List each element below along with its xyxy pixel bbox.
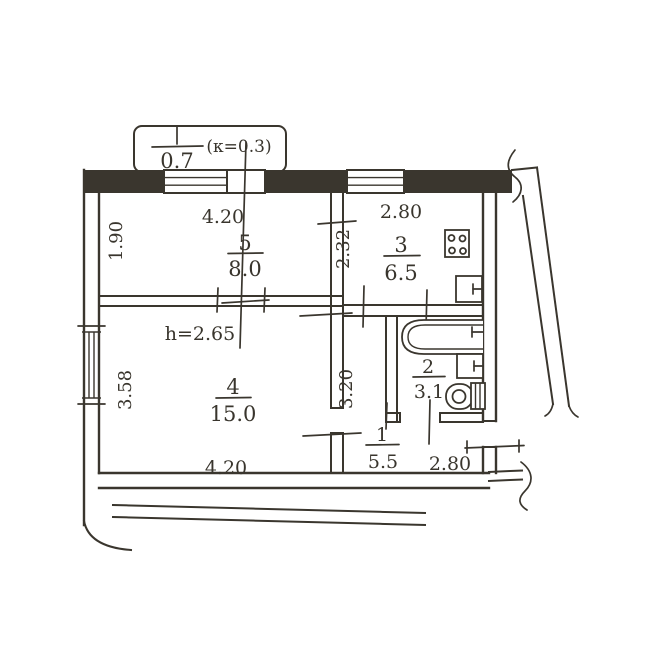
wall-break-bottom-right (520, 462, 531, 510)
hall-number: 1 (376, 424, 388, 446)
wall-break-bottom-left (84, 521, 131, 550)
hall-label: 1 5.5 (366, 424, 399, 473)
room5-width-dim: 4.20 (202, 206, 244, 228)
room4-area: 15.0 (210, 402, 257, 426)
floor-plan-page: 0.7 (к=0.3) (0, 0, 655, 670)
kitchen-number: 3 (394, 233, 407, 257)
window-room4 (78, 326, 105, 404)
stove-icon (445, 230, 469, 257)
room4-number: 4 (226, 375, 239, 399)
bathroom-label: 2 3.1 (413, 356, 445, 403)
top-exterior-wall (83, 170, 512, 193)
bathtub-icon (402, 320, 483, 354)
hall-depth-dim: 3.20 (336, 369, 357, 409)
kitchen-label: 3 6.5 (384, 233, 420, 285)
hall-width-dim: 2.80 (429, 453, 471, 475)
kitchen-depth-dim: 2.32 (333, 229, 354, 269)
wall-room5-room4 (99, 296, 343, 306)
floor-plan-drawing: 0.7 (к=0.3) (0, 0, 655, 670)
balcony-door (227, 170, 265, 193)
ceiling-height-label: h=2.65 (165, 323, 235, 345)
kitchen-sink-icon (456, 276, 482, 302)
kitchen-width-dim: 2.80 (380, 201, 422, 223)
window-room5 (164, 170, 227, 193)
hall-area: 5.5 (368, 451, 398, 473)
neighbour-building-wall (523, 168, 578, 418)
room4-depth-dim: 3.58 (115, 370, 136, 410)
room4-label: 4 15.0 (210, 375, 257, 426)
wall-break-top-right (508, 150, 537, 202)
balcony-coefficient-label: (к=0.3) (206, 137, 271, 157)
balcony-fraction-bar (152, 146, 203, 147)
right-exterior-wall (483, 193, 496, 473)
lower-building-wall (113, 505, 425, 525)
room5-area: 8.0 (228, 257, 261, 281)
bathroom-number: 2 (422, 356, 434, 378)
room5-number: 5 (238, 231, 251, 255)
room5-label: 5 8.0 (228, 231, 263, 281)
toilet-icon (446, 383, 485, 409)
wash-basin-icon (457, 354, 483, 378)
room5-depth-dim: 1.90 (106, 221, 127, 261)
room4-width-dim: 4.20 (205, 457, 247, 479)
window-kitchen (347, 170, 404, 193)
wall-bathroom-bottom (386, 413, 483, 422)
bathroom-area: 3.1 (414, 381, 444, 403)
kitchen-area: 6.5 (384, 261, 417, 285)
